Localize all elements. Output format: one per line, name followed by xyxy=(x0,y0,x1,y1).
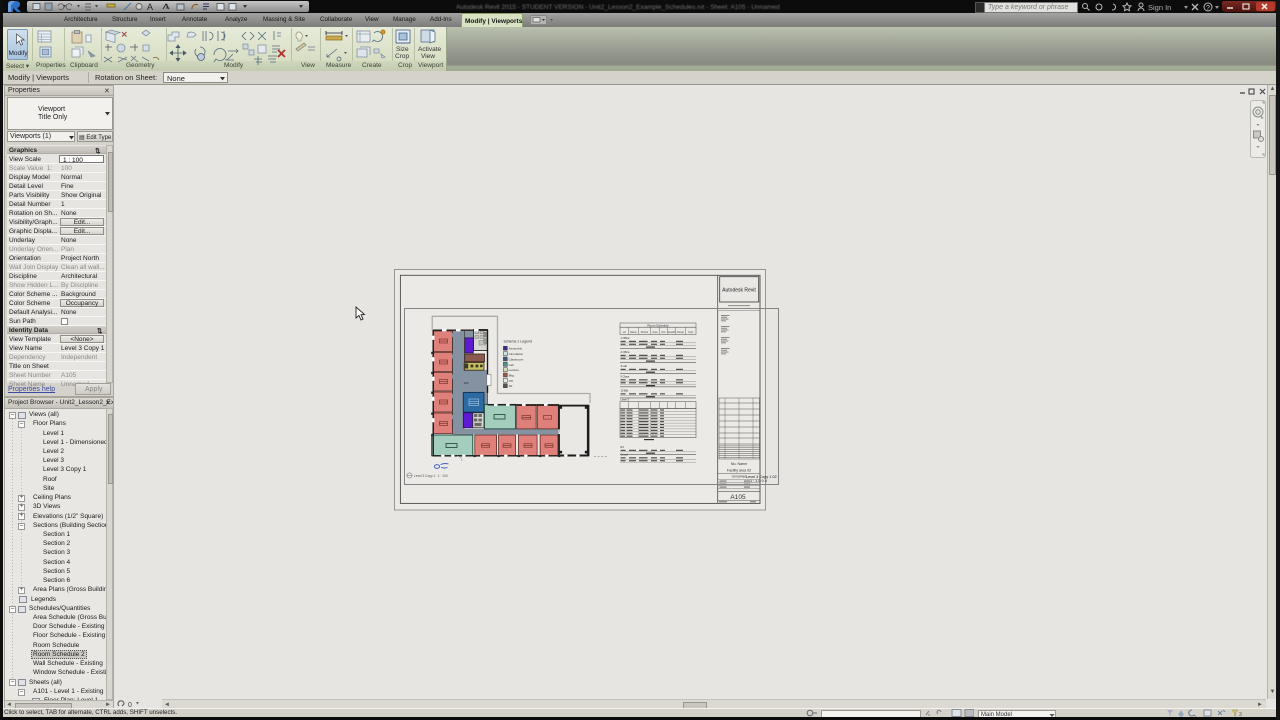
svg-text:A105: A105 xyxy=(730,494,746,501)
svg-text:Autodesk Revit: Autodesk Revit xyxy=(722,288,756,294)
svg-text:Crop: Crop xyxy=(395,53,409,60)
svg-text:?: ? xyxy=(1206,5,1210,12)
svg-text:Size: Size xyxy=(396,46,409,53)
svg-text:Sign In: Sign In xyxy=(1148,3,1171,12)
svg-text:View: View xyxy=(421,53,435,60)
svg-text:Activate: Activate xyxy=(418,46,442,53)
svg-text:A: A xyxy=(147,2,153,12)
